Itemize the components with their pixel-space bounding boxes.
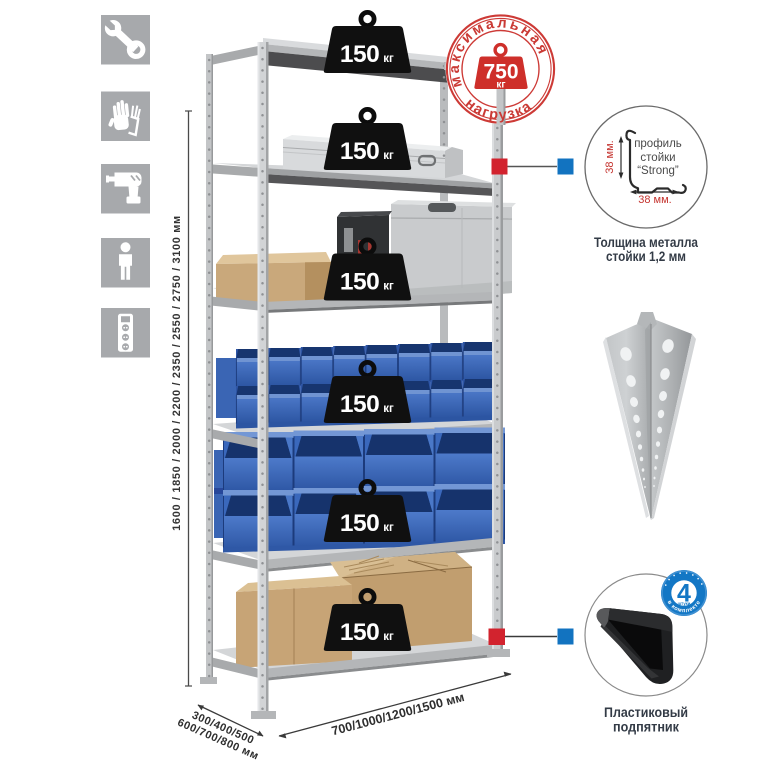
svg-text:стойки 1,2 мм: стойки 1,2 мм xyxy=(606,248,686,264)
svg-text:“Strong”: “Strong” xyxy=(637,165,679,177)
svg-text:38 мм.: 38 мм. xyxy=(604,140,616,173)
svg-text:700/1000/1200/1500 мм: 700/1000/1200/1500 мм xyxy=(330,690,466,738)
svg-text:38 мм.: 38 мм. xyxy=(638,194,671,206)
svg-text:штуки: штуки xyxy=(678,601,691,606)
svg-text:профиль: профиль xyxy=(634,138,682,150)
svg-text:1600 / 1850 / 2000 / 2200 / 23: 1600 / 1850 / 2000 / 2200 / 2350 / 2550 … xyxy=(171,215,183,531)
svg-text:кг: кг xyxy=(496,80,505,91)
svg-text:стойки: стойки xyxy=(640,152,675,164)
svg-text:подпятник: подпятник xyxy=(613,719,680,735)
